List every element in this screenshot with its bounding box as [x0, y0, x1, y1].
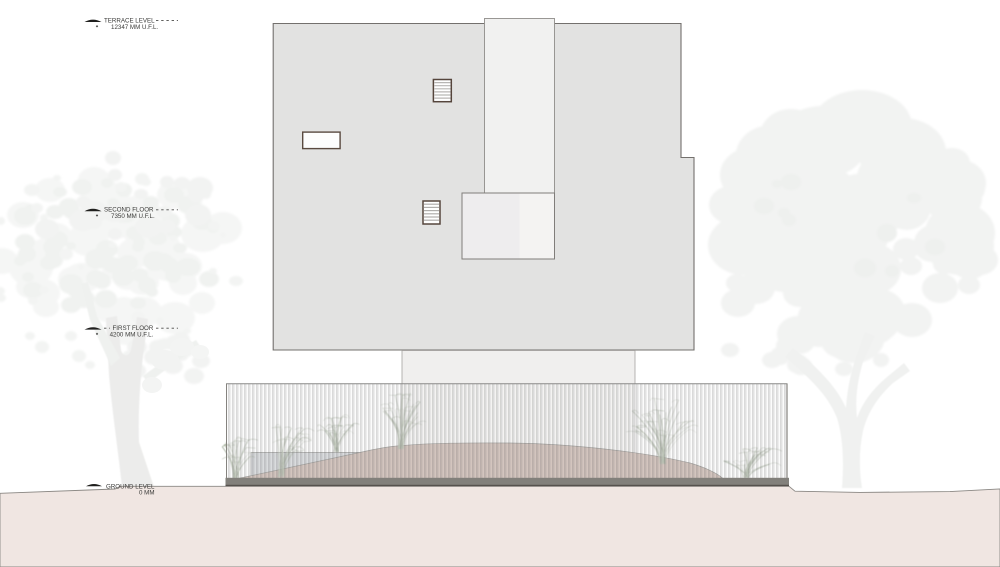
- svg-text:0 MM: 0 MM: [139, 490, 154, 497]
- svg-text:12347 MM U.F.L.: 12347 MM U.F.L.: [111, 24, 158, 31]
- svg-text:4200 MM U.F.L.: 4200 MM U.F.L.: [110, 332, 154, 339]
- svg-text:7350 MM U.F.L.: 7350 MM U.F.L.: [111, 213, 155, 220]
